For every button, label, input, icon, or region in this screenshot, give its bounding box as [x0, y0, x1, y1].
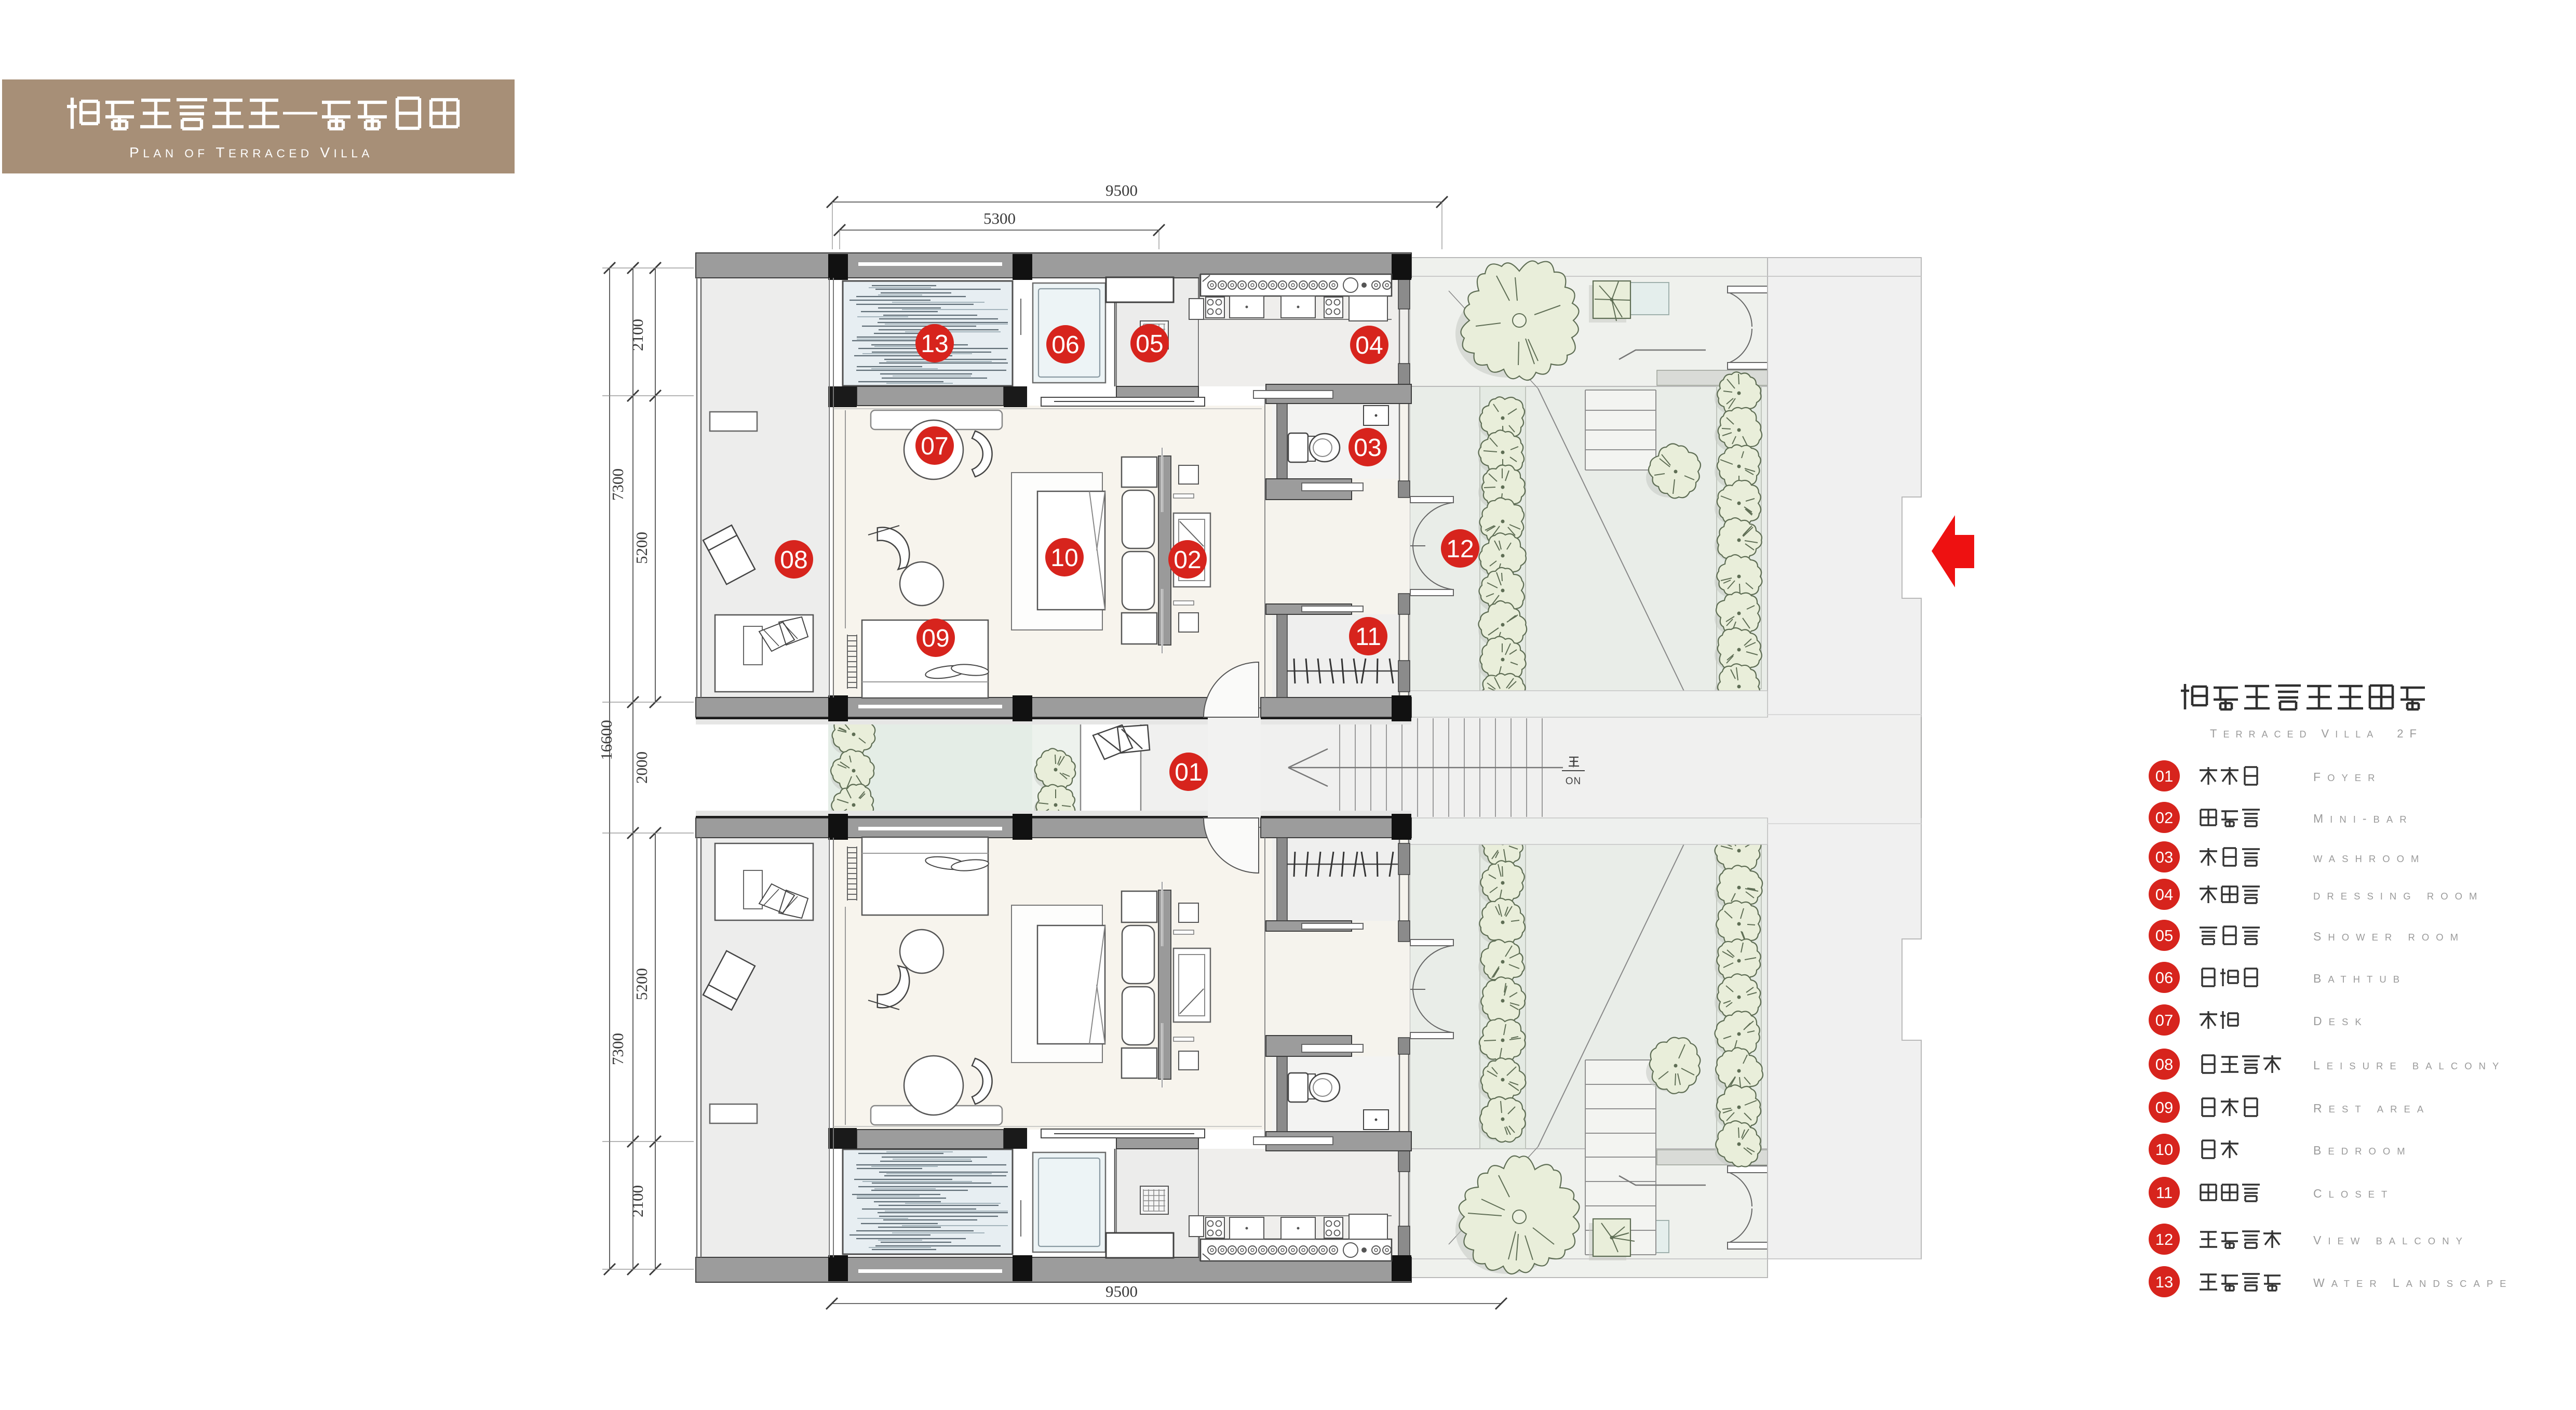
svg-text:ON: ON [1566, 776, 1582, 787]
svg-text:9500: 9500 [1105, 181, 1138, 199]
svg-text:08: 08 [2155, 1055, 2173, 1073]
svg-text:MINI-BAR: MINI-BAR [2313, 812, 2413, 825]
svg-text:04: 04 [2155, 885, 2173, 904]
svg-text:VIEW BALCONY: VIEW BALCONY [2313, 1233, 2469, 1247]
svg-text:9500: 9500 [1105, 1282, 1138, 1300]
svg-text:06: 06 [1051, 331, 1079, 359]
svg-text:WATER LANDSCAPE: WATER LANDSCAPE [2313, 1276, 2513, 1290]
svg-text:CLOSET: CLOSET [2313, 1187, 2394, 1200]
svg-text:5200: 5200 [632, 532, 651, 564]
svg-text:7300: 7300 [609, 468, 627, 501]
svg-text:10: 10 [2155, 1140, 2173, 1159]
svg-text:07: 07 [921, 433, 948, 460]
svg-text:08: 08 [780, 546, 807, 574]
svg-text:FOYER: FOYER [2313, 770, 2382, 784]
svg-text:7300: 7300 [609, 1033, 627, 1065]
svg-text:11: 11 [2156, 1184, 2173, 1202]
svg-text:DESK: DESK [2313, 1014, 2368, 1028]
svg-text:DRESSING ROOM: DRESSING ROOM [2313, 891, 2484, 902]
svg-text:09: 09 [2155, 1098, 2173, 1117]
svg-text:05: 05 [1136, 330, 1163, 358]
svg-text:16600: 16600 [597, 720, 615, 760]
svg-text:2100: 2100 [628, 319, 646, 351]
svg-text:5200: 5200 [632, 968, 651, 1000]
svg-text:03: 03 [2155, 848, 2173, 866]
svg-text:WASHROOM: WASHROOM [2313, 853, 2425, 864]
svg-text:07: 07 [2155, 1011, 2173, 1029]
svg-text:03: 03 [1354, 434, 1381, 462]
svg-text:BATHTUB: BATHTUB [2313, 972, 2406, 985]
svg-text:09: 09 [922, 625, 949, 652]
svg-text:BEDROOM: BEDROOM [2313, 1144, 2412, 1157]
svg-text:2100: 2100 [628, 1185, 646, 1217]
svg-text:5300: 5300 [983, 209, 1016, 227]
svg-text:12: 12 [2155, 1230, 2173, 1248]
svg-text:2000: 2000 [632, 751, 651, 784]
svg-text:12: 12 [1446, 535, 1474, 563]
svg-text:02: 02 [1174, 546, 1201, 574]
svg-text:PLAN OF TERRACED VILLA: PLAN OF TERRACED VILLA [129, 144, 373, 160]
svg-text:06: 06 [2155, 969, 2173, 987]
svg-text:13: 13 [2155, 1273, 2173, 1291]
svg-text:REST AREA: REST AREA [2313, 1102, 2430, 1115]
svg-text:13: 13 [921, 330, 948, 358]
svg-text:10: 10 [1050, 544, 1078, 572]
svg-text:LEISURE BALCONY: LEISURE BALCONY [2313, 1058, 2505, 1072]
svg-text:TERRACED VILLA 2F: TERRACED VILLA 2F [2210, 727, 2423, 740]
svg-text:02: 02 [2155, 809, 2173, 827]
svg-text:SHOWER ROOM: SHOWER ROOM [2313, 930, 2465, 943]
svg-text:11: 11 [1355, 623, 1381, 651]
svg-text:04: 04 [1355, 332, 1383, 359]
svg-text:05: 05 [2155, 926, 2173, 945]
svg-text:01: 01 [2155, 767, 2173, 785]
svg-text:01: 01 [1175, 759, 1202, 786]
